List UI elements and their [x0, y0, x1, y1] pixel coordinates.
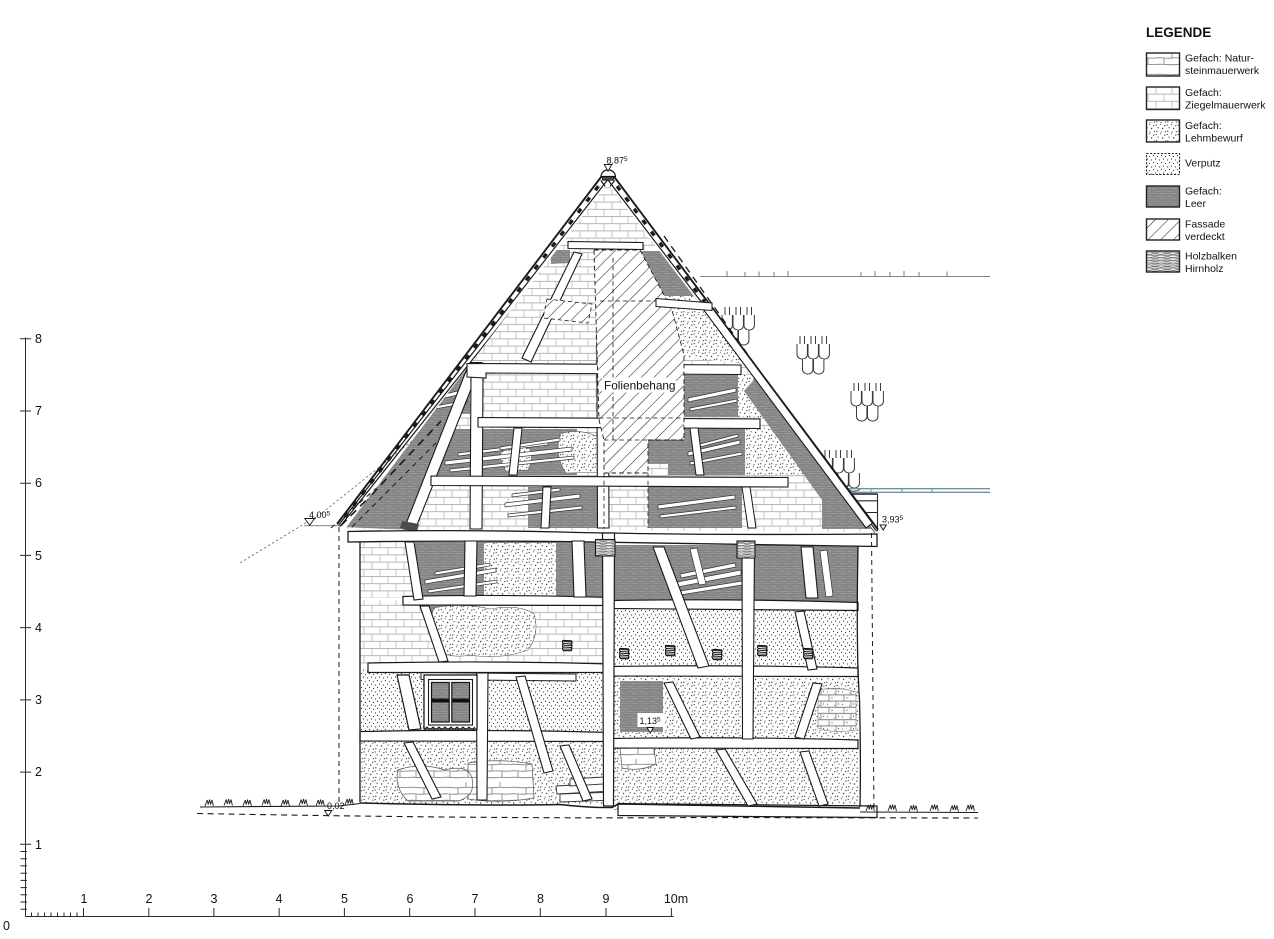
svg-text:Ziegelmauerwerk: Ziegelmauerwerk — [1185, 100, 1266, 112]
svg-text:LEGENDE: LEGENDE — [1146, 25, 1211, 40]
svg-text:verdeckt: verdeckt — [1185, 231, 1225, 243]
svg-text:2: 2 — [146, 892, 153, 906]
svg-text:5: 5 — [341, 892, 348, 906]
svg-text:Hirnholz: Hirnholz — [1185, 263, 1224, 275]
svg-text:3: 3 — [211, 892, 218, 906]
svg-text:Lehmbewurf: Lehmbewurf — [1185, 133, 1243, 145]
svg-text:6: 6 — [35, 476, 42, 490]
svg-text:Holzbalken: Holzbalken — [1185, 251, 1237, 263]
svg-text:Leer: Leer — [1185, 198, 1207, 210]
svg-text:steinmauerwerk: steinmauerwerk — [1185, 65, 1260, 77]
svg-text:Folienbehang: Folienbehang — [604, 379, 676, 393]
svg-text:4: 4 — [35, 621, 42, 635]
svg-text:1: 1 — [35, 838, 42, 852]
svg-text:Fassade: Fassade — [1185, 219, 1225, 231]
svg-text:0: 0 — [3, 919, 10, 933]
svg-text:10m: 10m — [664, 892, 688, 906]
svg-text:Verputz: Verputz — [1185, 158, 1221, 170]
svg-text:Gefach: Natur-: Gefach: Natur- — [1185, 53, 1254, 65]
svg-text:8: 8 — [35, 332, 42, 346]
svg-text:Gefach:: Gefach: — [1185, 186, 1222, 198]
svg-text:1: 1 — [81, 892, 88, 906]
svg-text:7: 7 — [35, 404, 42, 418]
svg-text:Gefach:: Gefach: — [1185, 120, 1222, 132]
svg-text:0,02: 0,02 — [327, 801, 345, 811]
svg-text:4: 4 — [276, 892, 283, 906]
svg-text:6: 6 — [407, 892, 414, 906]
svg-text:Gefach:: Gefach: — [1185, 87, 1222, 99]
svg-text:3: 3 — [35, 693, 42, 707]
svg-text:8: 8 — [537, 892, 544, 906]
svg-text:7: 7 — [472, 892, 479, 906]
svg-text:2: 2 — [35, 765, 42, 779]
svg-text:9: 9 — [603, 892, 610, 906]
svg-text:5: 5 — [35, 549, 42, 563]
